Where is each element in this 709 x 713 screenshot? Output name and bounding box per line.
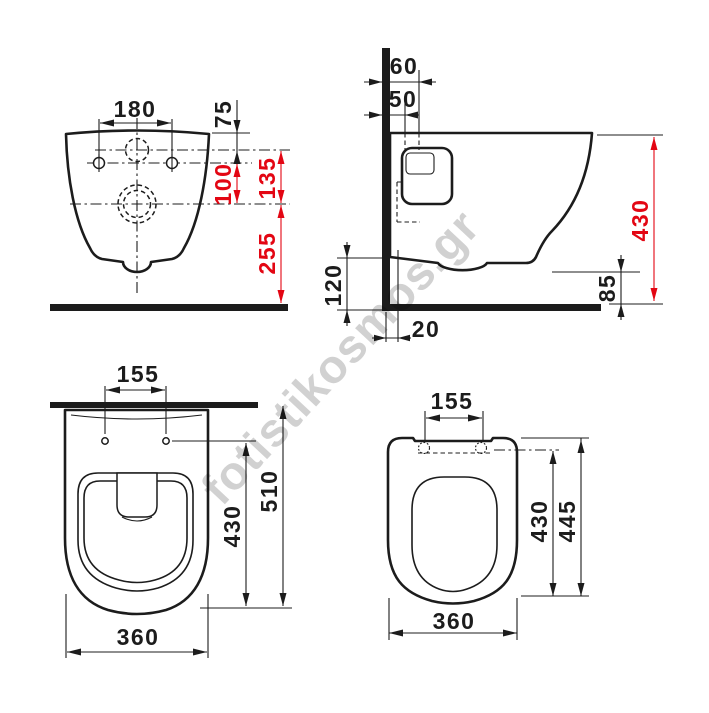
side-dim-430-label: 430: [627, 199, 653, 242]
bowl-fixing-hole-right: [163, 438, 169, 444]
side-dim-50: 50: [364, 86, 419, 133]
front-dim-135-label: 135: [254, 157, 280, 200]
toilet-dimension-drawing: 180 75 100 135 255: [0, 0, 709, 713]
front-dim-100-label: 100: [210, 163, 236, 206]
seat-dim-430-label: 430: [526, 500, 552, 543]
bowl-fixing-hole-left: [102, 438, 108, 444]
front-dim-255-label: 255: [254, 232, 280, 275]
bowl-wall-line: [50, 402, 258, 408]
front-dim-100: 100: [210, 163, 241, 206]
front-dim-75-label: 75: [210, 100, 236, 129]
bowl-dim-155-label: 155: [117, 361, 160, 387]
front-view: 180 75 100 135 255: [50, 96, 290, 311]
side-dim-85-label: 85: [594, 274, 620, 303]
seat-dim-445-label: 445: [554, 500, 580, 543]
front-floor-line: [50, 304, 288, 311]
seat-top-view: 155 430 445 360: [388, 388, 589, 640]
seat-dim-360-label: 360: [433, 608, 476, 634]
front-dim-135: 135: [254, 151, 285, 203]
seat-dim-155: 155: [425, 388, 483, 442]
front-dim-180-label: 180: [114, 96, 157, 122]
side-dim-50-label: 50: [389, 86, 418, 112]
bowl-dim-360-label: 360: [117, 624, 160, 650]
drawing-canvas: 180 75 100 135 255: [0, 0, 709, 713]
side-flush-box: [402, 148, 452, 204]
side-dim-60-label: 60: [390, 53, 419, 79]
bowl-top-view: 155 430 510 360: [50, 361, 292, 658]
seat-dim-155-label: 155: [431, 388, 474, 414]
side-dim-20-label: 20: [412, 316, 441, 342]
bowl-flush-distributor: [117, 473, 157, 517]
seat-dim-430: 430: [526, 451, 557, 596]
front-dim-255: 255: [254, 205, 285, 303]
front-dim-75: 75: [210, 100, 250, 164]
side-dim-120-label: 120: [320, 264, 346, 307]
